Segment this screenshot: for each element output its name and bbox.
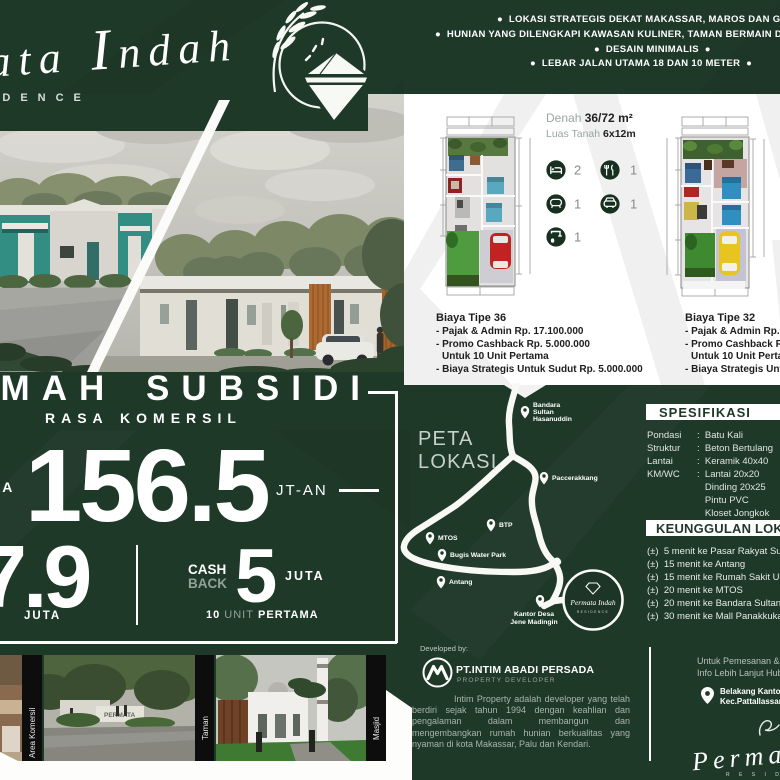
svg-text:Kantor Desa: Kantor Desa bbox=[514, 611, 554, 618]
svg-text:Luas Tanah 6x12m: Luas Tanah 6x12m bbox=[546, 128, 636, 140]
svg-text:Paccerakkang: Paccerakkang bbox=[552, 475, 598, 482]
svg-text:Sultan: Sultan bbox=[533, 409, 554, 416]
svg-text:Denah 36/72 m²: Denah 36/72 m² bbox=[546, 111, 633, 125]
svg-text:1: 1 bbox=[574, 197, 581, 212]
svg-text:- Biaya Strategis Untuk Sudut: - Biaya Strategis Untuk Sudut bbox=[685, 364, 780, 375]
svg-text:BTP: BTP bbox=[499, 522, 513, 529]
svg-text:- Promo Cashback Rp. 5.000.000: - Promo Cashback Rp. 5.000.000 bbox=[436, 339, 590, 350]
svg-text:MTOS: MTOS bbox=[438, 535, 458, 542]
svg-text:Antang: Antang bbox=[449, 579, 472, 586]
svg-text:- Biaya Strategis Untuk Sudut: - Biaya Strategis Untuk Sudut Rp. 5.000.… bbox=[436, 364, 643, 375]
svg-text:Jene Madingin: Jene Madingin bbox=[510, 619, 557, 626]
svg-text:2: 2 bbox=[574, 163, 581, 178]
svg-text:1: 1 bbox=[630, 163, 637, 178]
svg-text:Permata Indah: Permata Indah bbox=[569, 598, 615, 607]
svg-text:- Promo Cashback Rp. 5.000.000: - Promo Cashback Rp. 5.000.000 bbox=[685, 339, 780, 350]
svg-text:PERMATA: PERMATA bbox=[104, 712, 135, 719]
svg-text:Untuk 10 Unit Pertama: Untuk 10 Unit Pertama bbox=[442, 351, 549, 362]
svg-text:Hasanuddin: Hasanuddin bbox=[533, 416, 572, 423]
svg-text:Bugis Water Park: Bugis Water Park bbox=[450, 552, 506, 559]
svg-text:- Pajak & Admin Rp. 17.100.000: - Pajak & Admin Rp. 17.100.000 bbox=[436, 326, 584, 337]
svg-text:Bandara: Bandara bbox=[533, 402, 560, 409]
svg-text:Biaya Tipe 32: Biaya Tipe 32 bbox=[685, 312, 755, 324]
svg-text:RESIDENCE: RESIDENCE bbox=[577, 610, 609, 614]
svg-text:Untuk 10 Unit Pertama: Untuk 10 Unit Pertama bbox=[691, 351, 780, 362]
svg-text:1: 1 bbox=[630, 197, 637, 212]
svg-text:1: 1 bbox=[574, 230, 581, 245]
svg-text:- Pajak & Admin Rp. 12.000.000: - Pajak & Admin Rp. 12.000.000 bbox=[685, 326, 780, 337]
svg-text:Taman: Taman bbox=[201, 716, 210, 740]
svg-text:Area Komersil: Area Komersil bbox=[28, 708, 37, 758]
svg-text:Biaya Tipe 36: Biaya Tipe 36 bbox=[436, 312, 506, 324]
svg-text:Masjid: Masjid bbox=[372, 717, 381, 740]
